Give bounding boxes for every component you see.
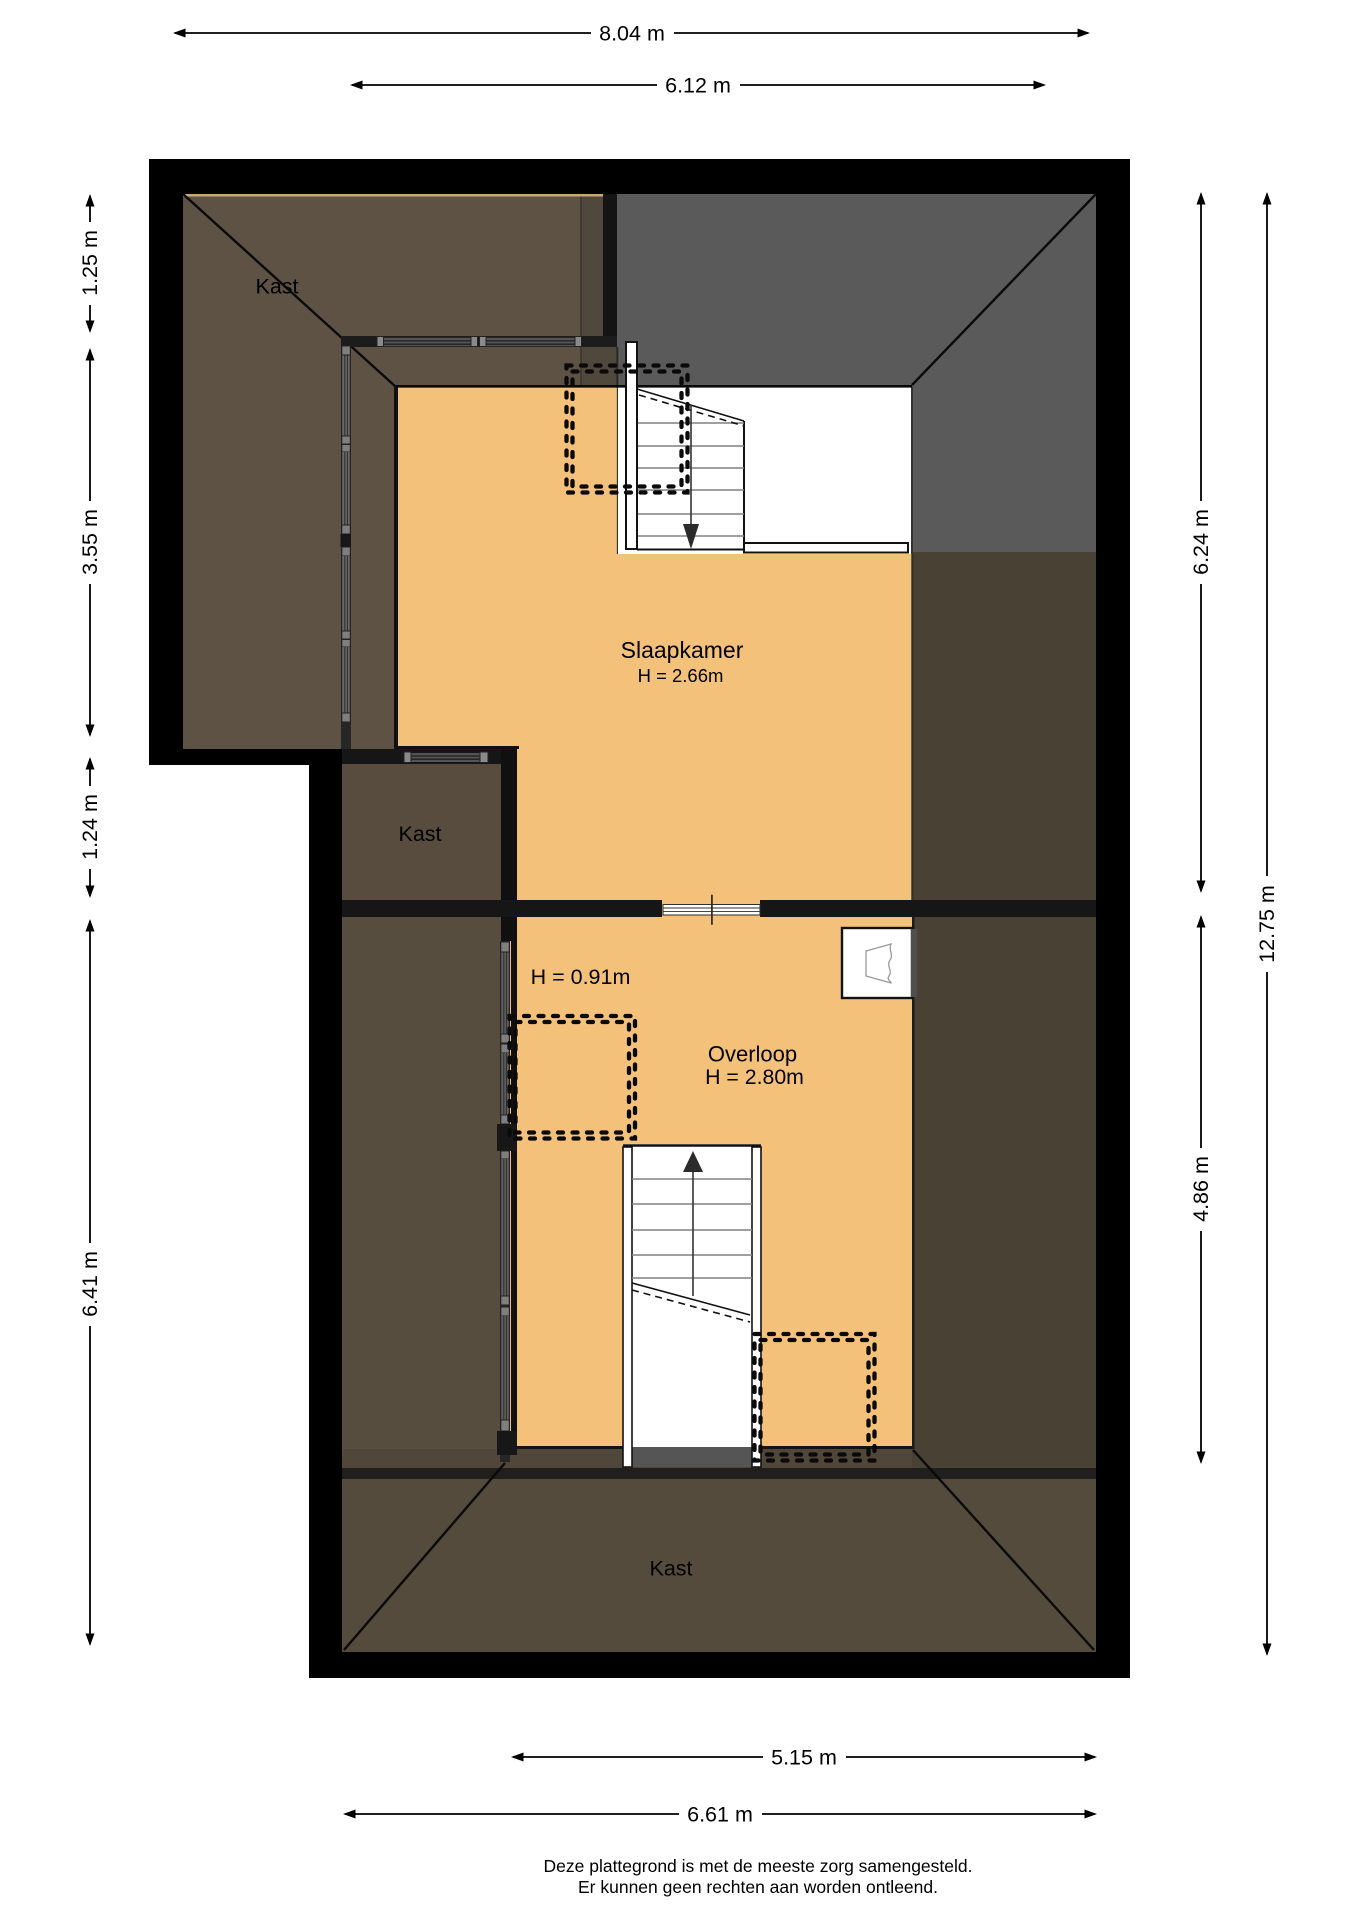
svg-text:6.61 m: 6.61 m [687, 1803, 753, 1827]
svg-text:12.75 m: 12.75 m [1255, 885, 1279, 963]
svg-text:3.55 m: 3.55 m [78, 509, 102, 575]
svg-text:Deze plattegrond is met de mee: Deze plattegrond is met de meeste zorg s… [544, 1856, 973, 1876]
svg-text:6.24 m: 6.24 m [1189, 509, 1213, 575]
svg-text:Er kunnen geen rechten aan wor: Er kunnen geen rechten aan worden ontlee… [578, 1877, 938, 1897]
svg-text:Kast: Kast [255, 275, 298, 299]
svg-text:6.41 m: 6.41 m [78, 1251, 102, 1317]
svg-text:5.15 m: 5.15 m [771, 1746, 837, 1770]
svg-text:Slaapkamer: Slaapkamer [621, 637, 744, 663]
svg-text:H = 0.91m: H = 0.91m [531, 965, 631, 989]
svg-text:H = 2.66m: H = 2.66m [638, 665, 724, 686]
svg-text:Kast: Kast [398, 822, 441, 846]
svg-text:8.04 m: 8.04 m [599, 22, 665, 46]
svg-text:6.12 m: 6.12 m [665, 74, 731, 98]
svg-text:H = 2.80m: H = 2.80m [705, 1065, 804, 1089]
svg-text:1.25 m: 1.25 m [78, 230, 102, 296]
svg-text:Overloop: Overloop [708, 1042, 797, 1067]
svg-text:Kast: Kast [649, 1557, 692, 1581]
svg-text:4.86 m: 4.86 m [1189, 1156, 1213, 1222]
svg-text:1.24 m: 1.24 m [78, 794, 102, 860]
